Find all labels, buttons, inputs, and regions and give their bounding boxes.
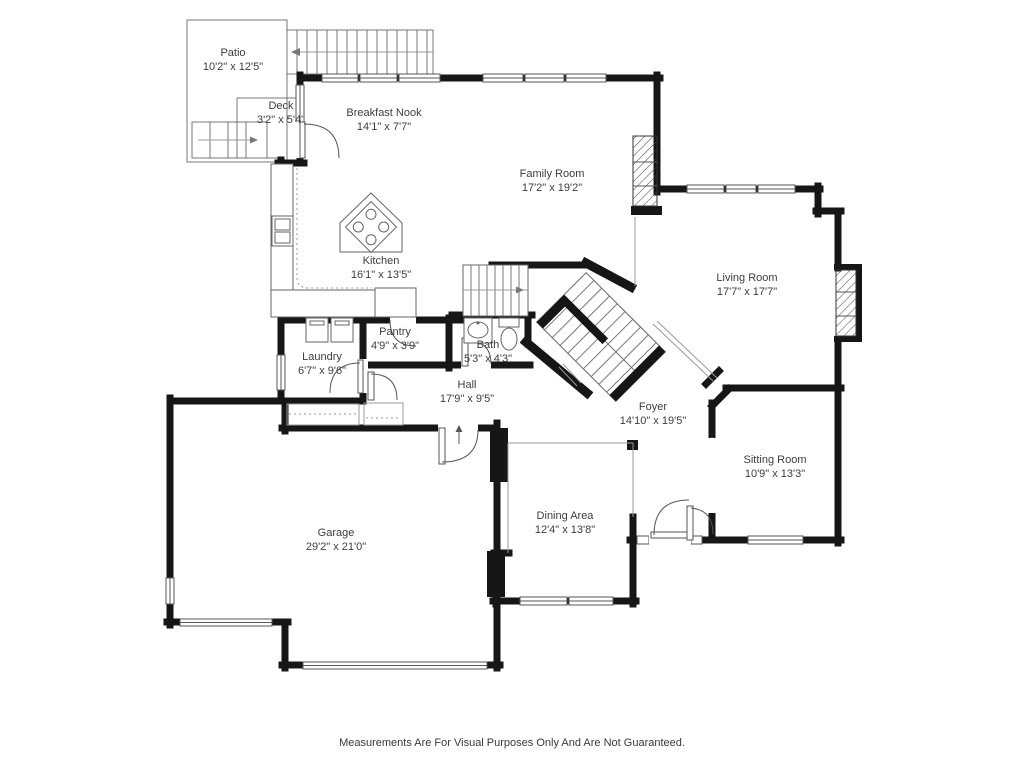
room-name: Family Room [520, 167, 585, 181]
room-name: Deck [257, 99, 305, 113]
stairs-straight [463, 265, 528, 316]
room-label-patio: Patio 10'2" x 12'5" [203, 46, 263, 74]
room-name: Living Room [716, 271, 777, 285]
family-room-fireplace [633, 136, 657, 206]
room-dims: 12'4" x 13'8" [535, 523, 595, 537]
room-name: Sitting Room [744, 453, 807, 467]
room-dims: 10'9" x 13'3" [744, 467, 807, 481]
room-label-garage: Garage 29'2" x 21'0" [306, 526, 366, 554]
room-label-breakfast-nook: Breakfast Nook 14'1" x 7'7" [346, 106, 421, 134]
deck-steps-arrow [250, 137, 258, 144]
room-dims: 16'1" x 13'5" [351, 268, 411, 282]
living-room-fireplace [834, 264, 862, 342]
room-label-sitting-room: Sitting Room 10'9" x 13'3" [744, 453, 807, 481]
hall-closet-door [368, 372, 397, 400]
room-name: Patio [203, 46, 263, 60]
deck-entry-door [295, 122, 339, 158]
room-dims: 14'10" x 19'5" [620, 414, 686, 428]
room-name: Pantry [371, 325, 419, 339]
room-dims: 17'7" x 17'7" [716, 285, 777, 299]
room-label-hall: Hall 17'9" x 9'5" [440, 378, 494, 406]
room-name: Garage [306, 526, 366, 540]
room-dims: 17'9" x 9'5" [440, 392, 494, 406]
room-label-bath: Bath 5'3" x 4'3" [464, 338, 512, 366]
room-dims: 14'1" x 7'7" [346, 120, 421, 134]
room-dims: 3'2" x 5'4" [257, 113, 305, 127]
sitting-room-door [687, 438, 717, 540]
disclaimer-text: Measurements Are For Visual Purposes Onl… [0, 737, 1024, 749]
kitchen-sink [272, 216, 293, 246]
garage-entry-door [438, 423, 478, 464]
room-dims: 17'2" x 19'2" [520, 181, 585, 195]
floor-plan: Patio 10'2" x 12'5" Deck 3'2" x 5'4" Bre… [0, 0, 1024, 768]
room-dims: 5'3" x 4'3" [464, 352, 512, 366]
room-name: Breakfast Nook [346, 106, 421, 120]
garage-doors [180, 619, 487, 669]
room-label-pantry: Pantry 4'9" x 3'9" [371, 325, 419, 353]
room-dims: 4'9" x 3'9" [371, 339, 419, 353]
kitchen-island [340, 193, 402, 252]
refrigerator [375, 288, 416, 317]
room-name: Foyer [620, 400, 686, 414]
room-name: Laundry [298, 350, 346, 364]
stairs-direction-arrow [291, 48, 300, 56]
room-label-deck: Deck 3'2" x 5'4" [257, 99, 305, 127]
room-dims: 6'7" x 9'6" [298, 364, 346, 378]
room-label-living-room: Living Room 17'7" x 17'7" [716, 271, 777, 299]
room-dims: 29'2" x 21'0" [306, 540, 366, 554]
room-name: Dining Area [535, 509, 595, 523]
room-label-family-room: Family Room 17'2" x 19'2" [520, 167, 585, 195]
room-name: Kitchen [351, 254, 411, 268]
deck-stairs-top [287, 30, 433, 74]
room-name: Bath [464, 338, 512, 352]
room-dims: 10'2" x 12'5" [203, 60, 263, 74]
closets [287, 403, 403, 425]
room-label-laundry: Laundry 6'7" x 9'6" [298, 350, 346, 378]
front-door [649, 500, 691, 545]
room-name: Hall [440, 378, 494, 392]
stairs-diagonal [537, 273, 666, 402]
room-label-foyer: Foyer 14'10" x 19'5" [620, 400, 686, 428]
room-label-kitchen: Kitchen 16'1" x 13'5" [351, 254, 411, 282]
floor-plan-drawing [0, 0, 1024, 768]
room-label-dining-area: Dining Area 12'4" x 13'8" [535, 509, 595, 537]
